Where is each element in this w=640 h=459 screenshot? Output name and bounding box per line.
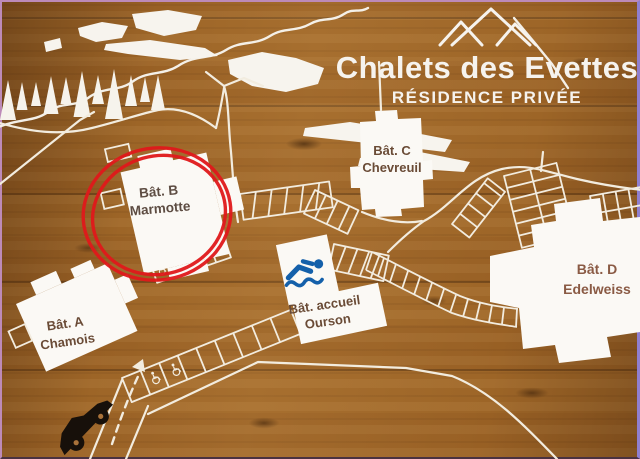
accessible-parking-icon (149, 370, 161, 384)
building-d-edelweiss: Bât. D Edelweiss (490, 198, 640, 363)
building-accueil-ourson: Bât. accueil Ourson (276, 226, 387, 345)
sign-title: Chalets des Evettes (328, 50, 640, 86)
car-icon (50, 390, 118, 459)
sign-subtitle: RÉSIDENCE PRIVÉE (328, 88, 640, 108)
road-hill-link (216, 88, 224, 128)
building-d-label: Bât. D (577, 261, 617, 277)
building-a-chamois: Bât. A Chamois (0, 245, 150, 379)
road-entry (126, 406, 148, 459)
map-sign: Bât. A Chamois Bât. B Marmotte Bât. C Ch… (0, 0, 640, 459)
building-c-label: Chevreuil (362, 160, 421, 175)
building-d-label: Edelweiss (563, 281, 631, 297)
accessible-parking-icon (170, 362, 182, 376)
parking-row-accueil (329, 244, 389, 281)
road-bottom-main (148, 362, 557, 459)
building-c-chevreuil: Bât. C Chevreuil (350, 110, 433, 217)
parking-row-mid (240, 181, 333, 219)
parking-row-entrance (122, 310, 300, 402)
parking-row-right-road (452, 178, 505, 237)
road-right-stub (541, 152, 543, 171)
entrance-arrow (112, 359, 145, 444)
building-c-label: Bât. C (373, 143, 411, 158)
road-branch (206, 72, 224, 86)
